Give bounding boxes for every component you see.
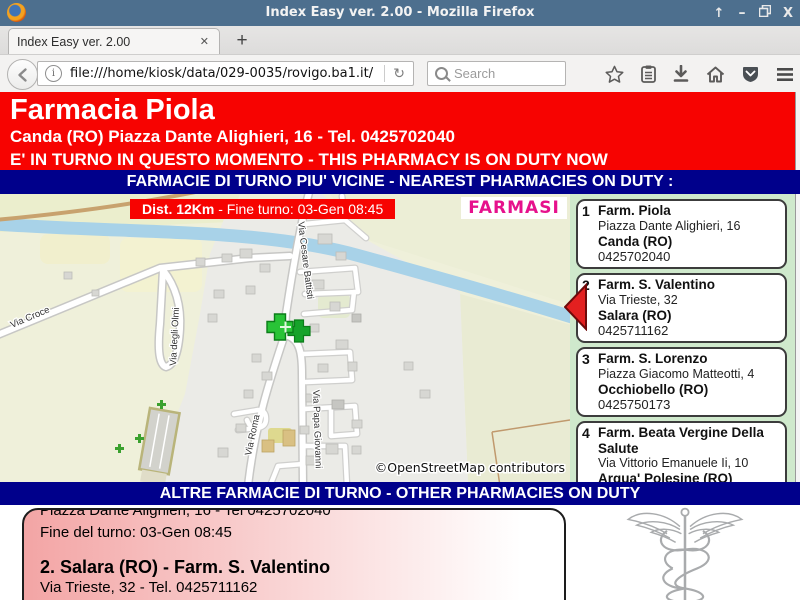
window-shade-button[interactable]: ↑ [711, 6, 727, 21]
home-icon [706, 66, 725, 83]
window-title: Index Easy ver. 2.00 - Mozilla Firefox [0, 0, 800, 26]
other-pharmacies-bar: ALTRE FARMACIE DI TURNO - OTHER PHARMACI… [0, 482, 800, 505]
bookmark-star-button[interactable] [605, 65, 624, 83]
back-button[interactable] [7, 59, 38, 90]
item-address: Via Trieste, 32 [598, 293, 780, 308]
tab-close-icon[interactable]: ✕ [198, 35, 211, 48]
pharmacy-header: Farmacia Piola Canda (RO) Piazza Dante A… [0, 92, 795, 170]
pharmacy-name: Farmacia Piola [10, 94, 795, 127]
item-name: Farm. Piola [598, 203, 780, 219]
item-name: Farm. Beata Vergine Della Salute [598, 425, 780, 456]
pharmacy-list-item-2[interactable]: 2 Farm. S. Valentino Via Trieste, 32 Sal… [576, 273, 787, 343]
window-restore-button[interactable] [757, 5, 773, 21]
item-number: 3 [582, 351, 590, 367]
ticker-clipped-line: Piazza Dante Alighieri, 16 - Tel 0425702… [40, 508, 548, 520]
downloads-button[interactable] [673, 65, 689, 83]
item-address: Piazza Giacomo Matteotti, 4 [598, 367, 780, 382]
farmasi-logo: FARMASI [461, 197, 567, 219]
map[interactable]: Via Croce Via degli Olmi Via Cesare Batt… [0, 194, 570, 482]
pharmacy-list-item-4[interactable]: 4 Farm. Beata Vergine Della Salute Via V… [576, 421, 787, 482]
page-scrollbar[interactable] [795, 92, 800, 505]
browser-window: Index Easy ver. 2.00 - Mozilla Firefox ↑… [0, 0, 800, 600]
url-bar[interactable]: i ↻ [37, 61, 414, 86]
menu-button[interactable] [776, 67, 794, 82]
pocket-icon [742, 66, 759, 83]
tab-index-easy[interactable]: Index Easy ver. 2.00 ✕ [8, 28, 220, 54]
item-name: Farm. S. Lorenzo [598, 351, 780, 367]
url-input[interactable] [68, 65, 380, 82]
tab-title: Index Easy ver. 2.00 [17, 35, 198, 49]
pocket-button[interactable] [742, 66, 759, 83]
page-info-icon[interactable]: i [45, 65, 62, 82]
home-button[interactable] [706, 66, 725, 83]
pharmacy-list: 1 Farm. Piola Piazza Dante Alighieri, 16… [570, 194, 795, 482]
star-icon [606, 66, 622, 82]
item-phone: 0425711162 [598, 323, 780, 338]
selected-item-arrow-icon [564, 283, 588, 331]
new-tab-button[interactable]: + [230, 30, 254, 52]
search-bar[interactable] [427, 61, 566, 86]
osm-attribution: ©OpenStreetMap contributors [375, 460, 565, 475]
item-city: Canda (RO) [598, 234, 780, 250]
window-minimize-button[interactable]: – [734, 5, 750, 21]
search-input[interactable] [452, 65, 565, 82]
item-city: Arqua' Polesine (RO) [598, 471, 780, 482]
hamburger-icon [776, 67, 794, 82]
bookmarks-menu-button[interactable] [641, 65, 656, 83]
item-city: Occhiobello (RO) [598, 382, 780, 398]
shift-end-time: - Fine turno: 03-Gen 08:45 [214, 201, 383, 217]
item-name: Farm. S. Valentino [598, 277, 780, 293]
item-address: Piazza Dante Alighieri, 16 [598, 219, 780, 234]
navigation-toolbar: i ↻ [0, 54, 800, 92]
bottom-section: Piazza Dante Alighieri, 16 - Tel 0425702… [0, 505, 800, 600]
item-number: 1 [582, 203, 590, 219]
window-titlebar: Index Easy ver. 2.00 - Mozilla Firefox ↑… [0, 0, 800, 26]
item-address: Via Vittorio Emanuele Ii, 10 [598, 456, 780, 471]
urlbar-divider [384, 65, 385, 82]
back-arrow-icon [15, 67, 31, 83]
pharmacy-address: Canda (RO) Piazza Dante Alighieri, 16 - … [10, 127, 795, 147]
item-number: 4 [582, 425, 590, 441]
pharmacy-duty-status: E' IN TURNO IN QUESTO MOMENTO - THIS PHA… [10, 150, 795, 170]
item-phone: 0425750173 [598, 397, 780, 412]
duty-ticker-panel: Piazza Dante Alighieri, 16 - Tel 0425702… [22, 508, 566, 600]
map-canvas: Via Croce Via degli Olmi Via Cesare Batt… [0, 194, 570, 482]
restore-icon [759, 5, 771, 17]
distance-value: Dist. 12Km [142, 201, 214, 217]
tab-strip: Index Easy ver. 2.00 ✕ + [0, 26, 800, 54]
item-phone: 0425702040 [598, 249, 780, 264]
ticker-shift-end: Fine del turno: 03-Gen 08:45 [40, 523, 548, 543]
nearest-pharmacies-bar: FARMACIE DI TURNO PIU' VICINE - NEAREST … [0, 170, 800, 194]
item-city: Salara (RO) [598, 308, 780, 324]
pharmacy-list-item-1[interactable]: 1 Farm. Piola Piazza Dante Alighieri, 16… [576, 199, 787, 269]
ticker-entry-address: Via Trieste, 32 - Tel. 0425711162 [40, 579, 548, 597]
window-close-button[interactable]: X [780, 6, 796, 21]
reload-icon[interactable]: ↻ [393, 66, 405, 82]
pharmacy-list-item-3[interactable]: 3 Farm. S. Lorenzo Piazza Giacomo Matteo… [576, 347, 787, 417]
ticker-entry-title: 2. Salara (RO) - Farm. S. Valentino [40, 557, 548, 577]
download-arrow-icon [673, 65, 689, 83]
search-magnifier-icon [435, 67, 448, 80]
clipboard-icon [641, 65, 656, 83]
caduceus-icon [598, 505, 772, 600]
distance-badge: Dist. 12Km - Fine turno: 03-Gen 08:45 [130, 199, 395, 219]
